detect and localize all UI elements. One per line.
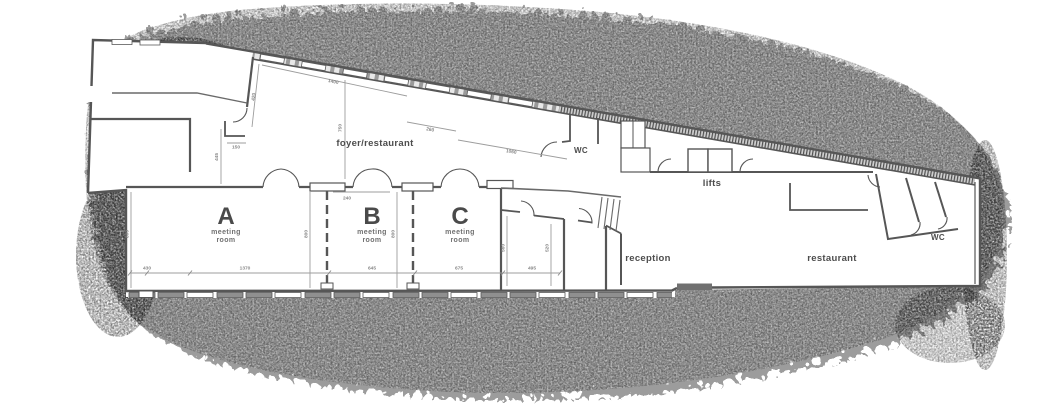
lift-cab: [708, 149, 732, 172]
lift-cab: [688, 149, 708, 172]
dim-445: 445: [214, 153, 220, 161]
rear-entrance-gap: [677, 284, 712, 291]
left-wall-door-gap: [87, 86, 94, 102]
top-window: [112, 40, 132, 45]
reception-label: reception: [625, 253, 670, 264]
dim-495: 495: [528, 266, 536, 272]
room-c-letter: C: [451, 203, 468, 230]
partition-end-pocket: [321, 283, 333, 289]
room-c-type-1: meeting: [445, 229, 475, 236]
dim-750: 750: [338, 124, 344, 132]
facade-panel-band: [128, 292, 672, 298]
top-window: [140, 40, 160, 45]
dim-1370: 1370: [240, 266, 251, 272]
partition-pocket: [487, 181, 513, 189]
room-a-letter: A: [217, 203, 234, 230]
room-b-type-1: meeting: [357, 229, 387, 236]
room-b-type-2: room: [362, 237, 381, 244]
shaft-box: [621, 148, 650, 172]
dim-240: 240: [343, 196, 351, 202]
facade-notch: [139, 291, 153, 298]
floor-plan-canvas: 420 1400 750 260 1060 150 445 240 800 80…: [0, 0, 1064, 415]
dim-560: 560: [501, 244, 507, 252]
foyer-label: foyer/restaurant: [336, 138, 414, 149]
room-b-letter: B: [363, 203, 380, 230]
dim-520: 520: [545, 244, 551, 252]
dim-800-b-right: 800: [391, 230, 397, 238]
partition-pocket: [310, 183, 345, 191]
wc-upper-label: WC: [574, 146, 588, 155]
dim-150: 150: [232, 145, 240, 151]
dim-675: 675: [455, 266, 463, 272]
room-c-type-2: room: [450, 237, 469, 244]
room-a-type-1: meeting: [211, 229, 241, 236]
dim-420: 420: [251, 92, 258, 101]
dim-645: 645: [368, 266, 376, 272]
dim-800-a-left: 800: [125, 230, 131, 238]
dim-800-a-right: 800: [304, 230, 310, 238]
restaurant-label: restaurant: [807, 253, 857, 264]
room-a-type-2: room: [216, 237, 235, 244]
wc-right-label: WC: [931, 233, 945, 242]
dim-430: 430: [143, 266, 151, 272]
lifts-label: lifts: [703, 178, 721, 189]
partition-pocket: [402, 183, 433, 191]
floor-plan-svg: 420 1400 750 260 1060 150 445 240 800 80…: [0, 0, 1064, 415]
partition-end-pocket: [407, 283, 419, 289]
